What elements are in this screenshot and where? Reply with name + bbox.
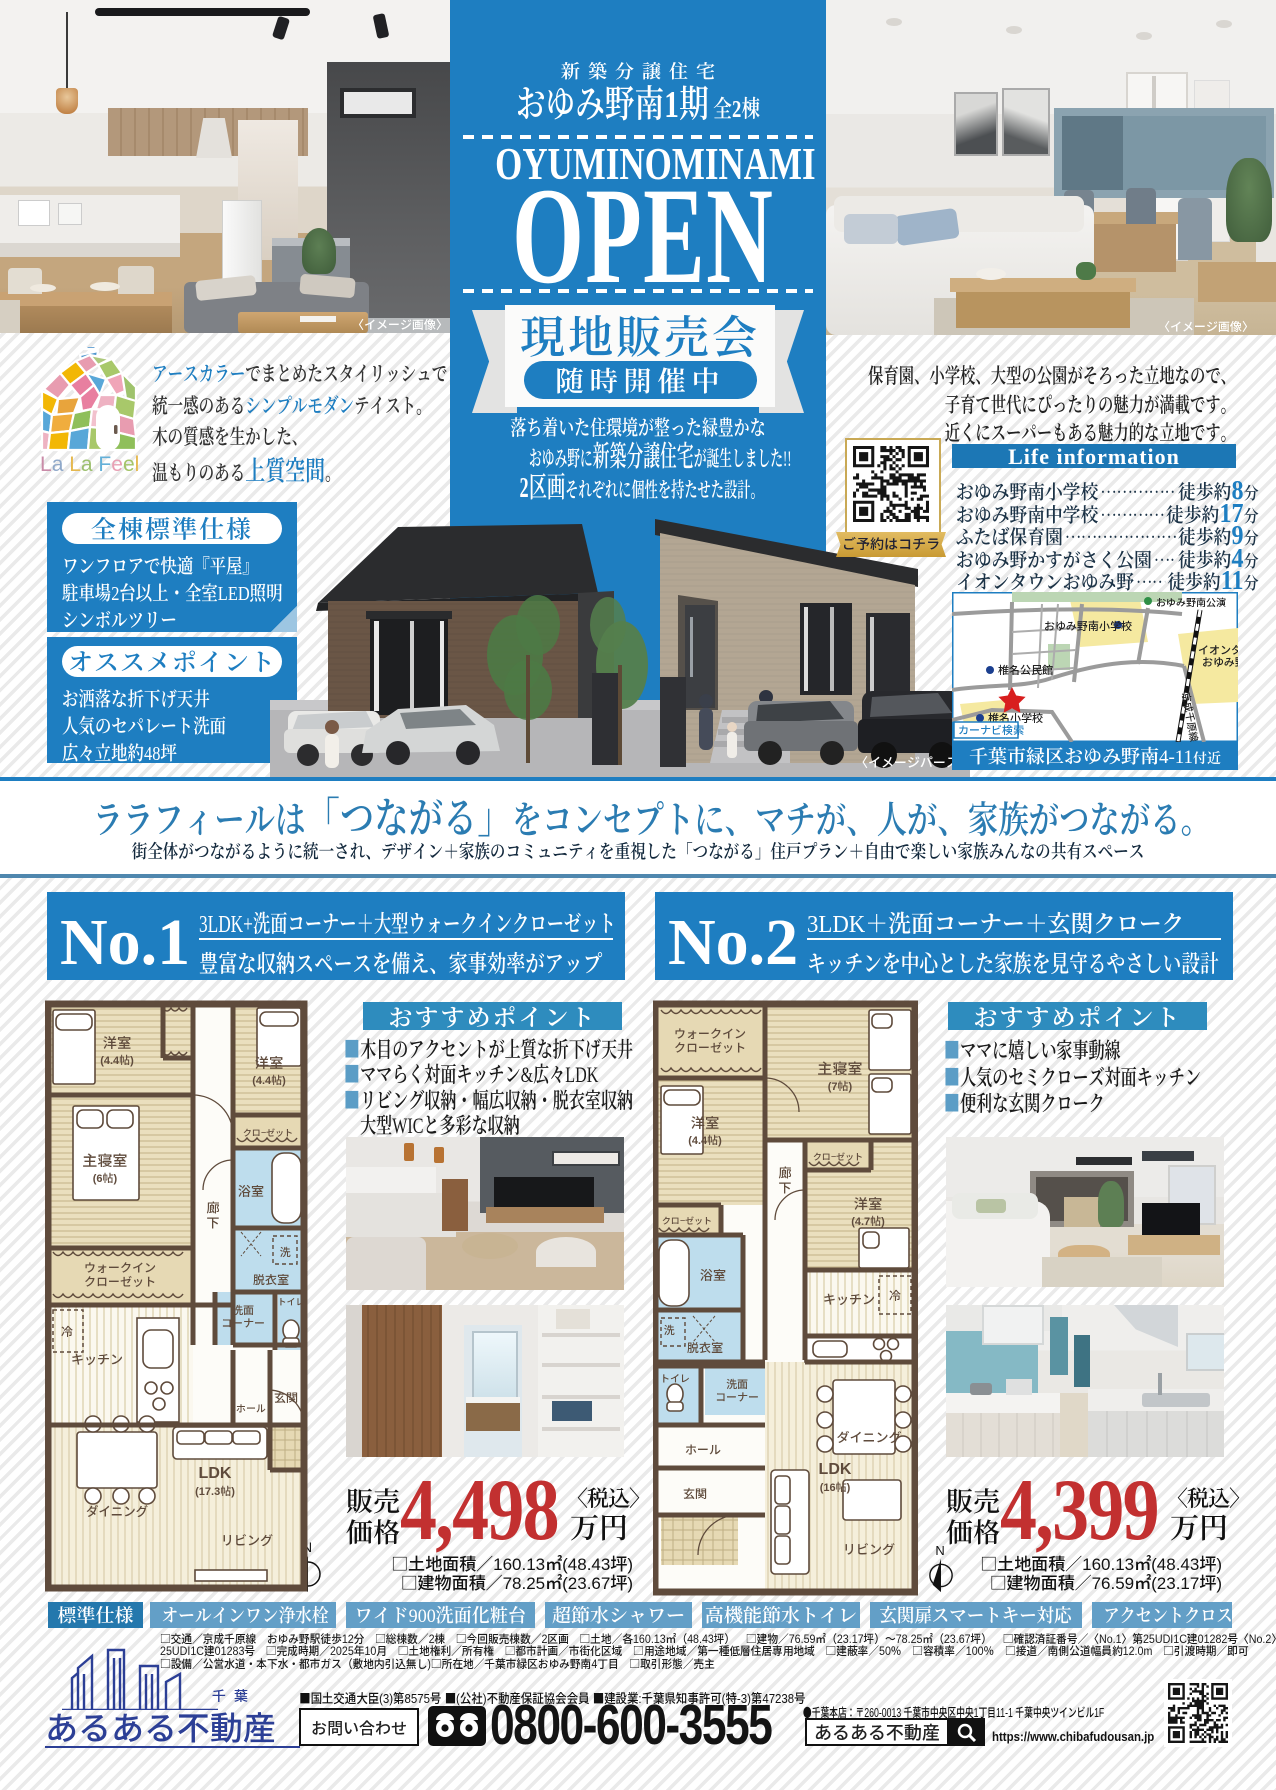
svg-text:(16帖): (16帖) bbox=[820, 1479, 851, 1495]
svg-text:椎名公民館: 椎名公民館 bbox=[998, 662, 1053, 678]
svg-text:クローゼット: クローゼット bbox=[674, 1039, 746, 1056]
svg-text:(4.7帖): (4.7帖) bbox=[851, 1213, 885, 1229]
svg-text:主寝室: 主寝室 bbox=[82, 1150, 127, 1171]
svg-text:カーナビ検索: カーナビ検索 bbox=[958, 722, 1024, 738]
svg-text:洋室: 洋室 bbox=[854, 1194, 882, 1214]
svg-text:洋室: 洋室 bbox=[255, 1053, 283, 1073]
svg-text:洗: 洗 bbox=[664, 1322, 675, 1338]
svg-text:脱衣室: 脱衣室 bbox=[687, 1339, 723, 1356]
svg-text:洗: 洗 bbox=[280, 1244, 291, 1260]
svg-text:玄関: 玄関 bbox=[683, 1485, 707, 1502]
svg-text:ダイニング: ダイニング bbox=[86, 1501, 148, 1520]
svg-text:トイレ: トイレ bbox=[277, 1295, 304, 1308]
svg-text:廊下: 廊下 bbox=[776, 1166, 795, 1194]
svg-text:N: N bbox=[935, 1543, 944, 1558]
svg-text:(17.3帖): (17.3帖) bbox=[195, 1483, 235, 1499]
svg-text:ホール: ホール bbox=[236, 1400, 267, 1415]
svg-text:(4.4帖): (4.4帖) bbox=[100, 1052, 134, 1068]
svg-text:(4.4帖): (4.4帖) bbox=[252, 1072, 286, 1088]
svg-text:トイレ: トイレ bbox=[660, 1370, 690, 1385]
svg-text:コーナー: コーナー bbox=[715, 1389, 759, 1405]
svg-text:冷: 冷 bbox=[61, 1323, 73, 1340]
svg-text:(4.4帖): (4.4帖) bbox=[688, 1132, 722, 1148]
svg-text:浴室: 浴室 bbox=[700, 1265, 726, 1284]
svg-text:洋室: 洋室 bbox=[103, 1033, 131, 1053]
svg-text:冷: 冷 bbox=[889, 1287, 901, 1304]
svg-text:La La Feel: La La Feel bbox=[40, 453, 139, 476]
svg-text:リビング: リビング bbox=[843, 1539, 895, 1558]
svg-text:クローゼット: クローゼット bbox=[84, 1273, 156, 1290]
svg-text:コーナー: コーナー bbox=[221, 1315, 265, 1331]
svg-text:脱衣室: 脱衣室 bbox=[253, 1271, 289, 1288]
svg-text:クロ−ゼット: クロ−ゼット bbox=[813, 1150, 863, 1163]
svg-text:キッチン: キッチン bbox=[823, 1289, 875, 1308]
svg-text:おゆみ野: おゆみ野 bbox=[1202, 654, 1238, 670]
svg-text:(7帖): (7帖) bbox=[828, 1078, 853, 1094]
svg-text:LDK: LDK bbox=[819, 1455, 852, 1479]
svg-text:浴室: 浴室 bbox=[238, 1181, 264, 1200]
svg-text:クロ−ゼット: クロ−ゼット bbox=[662, 1214, 712, 1227]
svg-text:ダイニング: ダイニング bbox=[836, 1427, 901, 1446]
svg-text:リビング: リビング bbox=[221, 1530, 273, 1549]
svg-text:クロ−ゼット: クロ−ゼット bbox=[243, 1126, 293, 1139]
svg-text:玄関: 玄関 bbox=[274, 1389, 298, 1406]
svg-text:キッチン: キッチン bbox=[71, 1349, 123, 1368]
svg-text:おゆみ野南小学校: おゆみ野南小学校 bbox=[1044, 618, 1132, 634]
svg-text:主寝室: 主寝室 bbox=[817, 1058, 862, 1079]
svg-text:おゆみ野南公演: おゆみ野南公演 bbox=[1156, 594, 1226, 609]
svg-text:ホール: ホール bbox=[685, 1441, 721, 1458]
svg-text:廊下: 廊下 bbox=[204, 1201, 223, 1229]
svg-text:LDK: LDK bbox=[199, 1459, 232, 1483]
svg-text:(6帖): (6帖) bbox=[93, 1170, 118, 1186]
svg-text:洋室: 洋室 bbox=[691, 1113, 719, 1133]
